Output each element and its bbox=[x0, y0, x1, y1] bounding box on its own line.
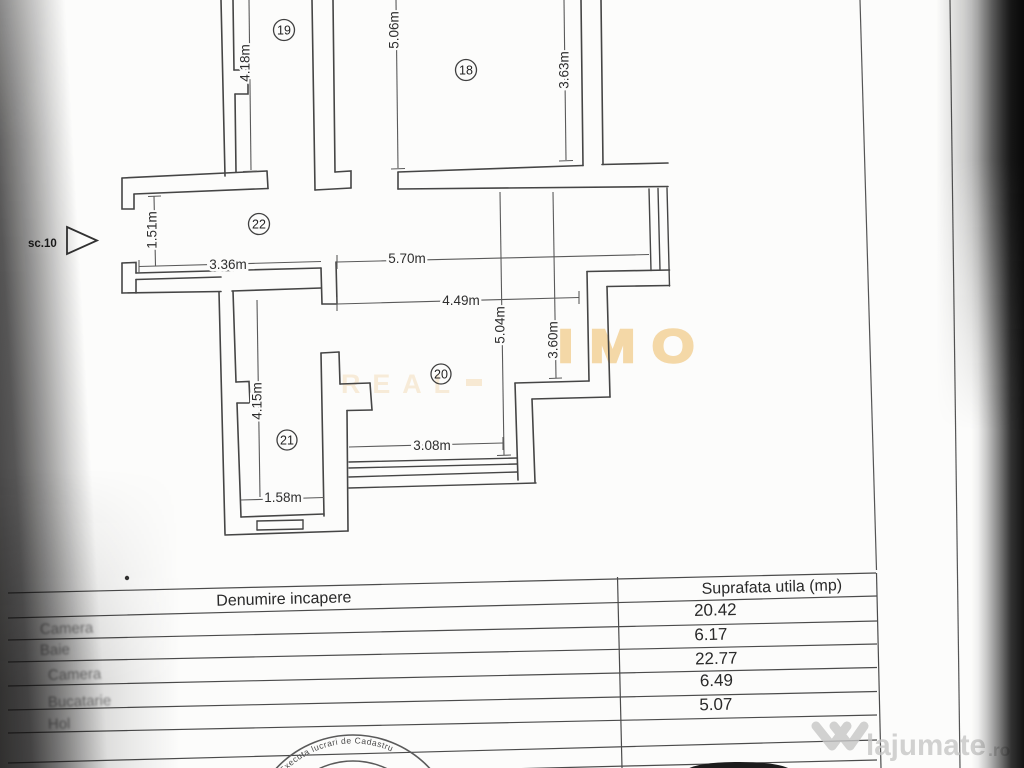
svg-text:20: 20 bbox=[434, 368, 448, 382]
svg-text:5.06m: 5.06m bbox=[387, 11, 402, 49]
svg-text:1.58m: 1.58m bbox=[264, 490, 302, 505]
svg-text:4.15m: 4.15m bbox=[250, 382, 265, 420]
svg-text:19: 19 bbox=[277, 24, 291, 38]
svg-text:6.17: 6.17 bbox=[694, 625, 728, 645]
svg-text:4.49m: 4.49m bbox=[442, 293, 480, 308]
svg-text:3.36m: 3.36m bbox=[209, 257, 247, 272]
svg-text:3.60m: 3.60m bbox=[546, 321, 561, 359]
svg-text:Suprafata utila (mp): Suprafata utila (mp) bbox=[701, 577, 842, 598]
svg-text:5.07: 5.07 bbox=[699, 695, 733, 715]
svg-text:5.70m: 5.70m bbox=[388, 251, 426, 266]
svg-text:21: 21 bbox=[280, 434, 294, 448]
svg-text:22.77: 22.77 bbox=[695, 648, 738, 668]
svg-text:IMO: IMO bbox=[558, 320, 711, 372]
svg-text:4.18m: 4.18m bbox=[238, 44, 253, 82]
svg-text:18: 18 bbox=[459, 64, 473, 78]
svg-text:3.63m: 3.63m bbox=[557, 51, 572, 89]
svg-text:3.08m: 3.08m bbox=[413, 438, 451, 453]
svg-text:5.04m: 5.04m bbox=[493, 306, 508, 344]
svg-text:20.42: 20.42 bbox=[694, 600, 737, 620]
svg-text:6.49: 6.49 bbox=[700, 671, 734, 691]
svg-text:Denumire incapere: Denumire incapere bbox=[216, 589, 352, 610]
svg-text:22: 22 bbox=[252, 218, 266, 232]
